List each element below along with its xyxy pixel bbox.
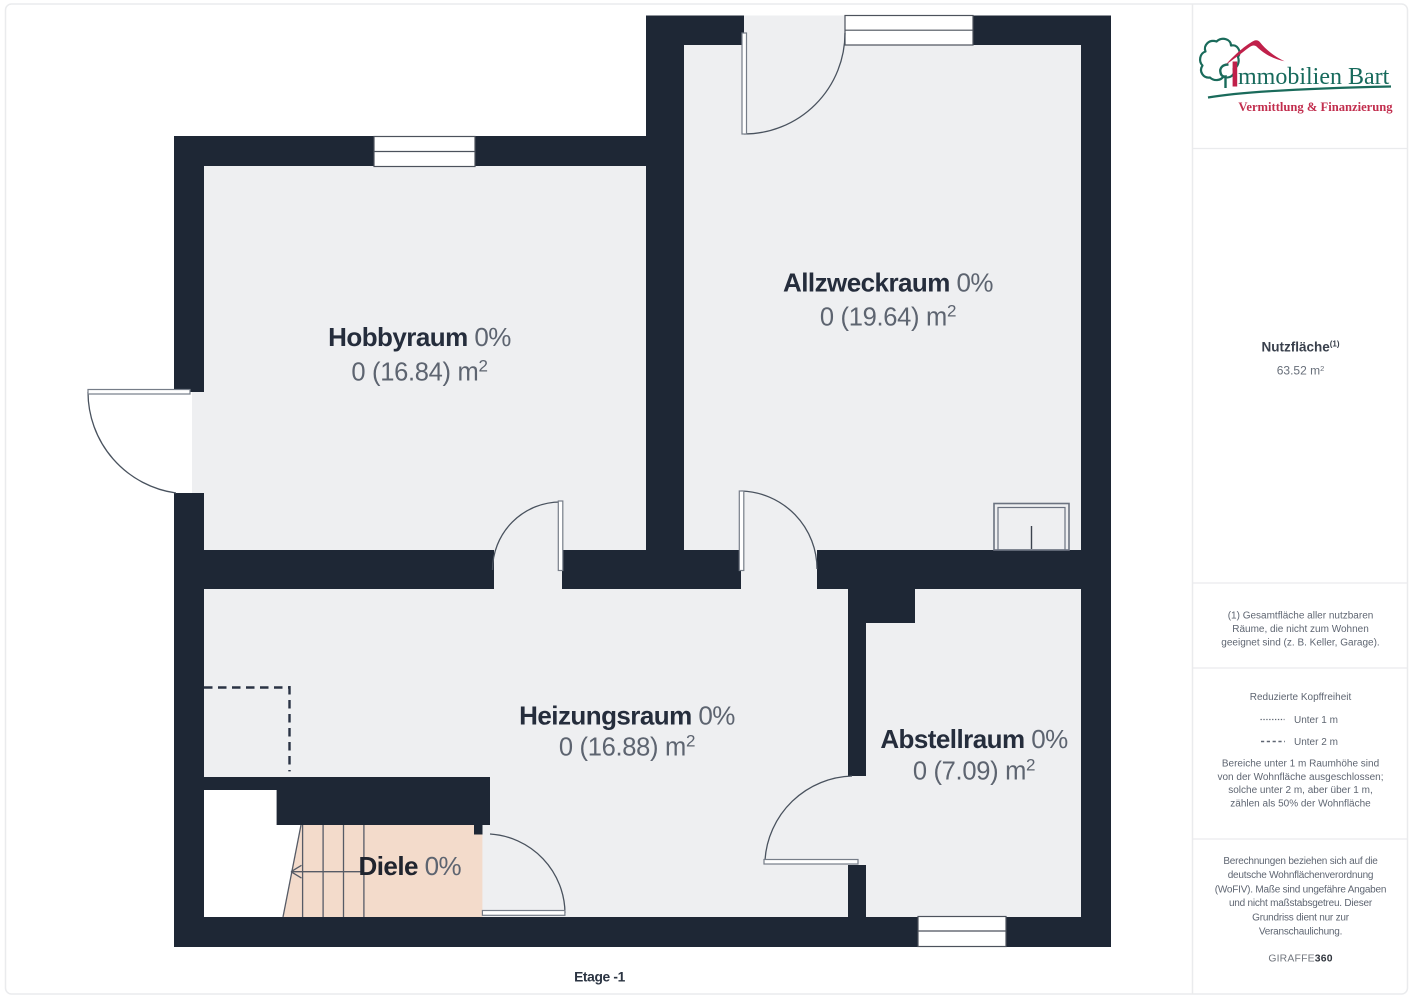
svg-text:Allzweckraum 0%: Allzweckraum 0% (783, 268, 993, 298)
svg-text:Vermittlung & Finanzierung: Vermittlung & Finanzierung (1238, 100, 1393, 114)
svg-text:deutsche Wohnflächenverordnung: deutsche Wohnflächenverordnung (1228, 870, 1374, 881)
svg-text:zählen als 50% der Wohnfläche: zählen als 50% der Wohnfläche (1230, 798, 1371, 809)
svg-text:(WoFIV). Maße sind ungefähre A: (WoFIV). Maße sind ungefähre Angaben (1215, 884, 1386, 895)
svg-text:Etage -1: Etage -1 (574, 970, 626, 985)
svg-text:Heizungsraum 0%: Heizungsraum 0% (519, 701, 735, 731)
svg-text:Nutzfläche(1): Nutzfläche(1) (1261, 340, 1339, 355)
svg-text:Hobbyraum 0%: Hobbyraum 0% (328, 322, 511, 352)
svg-text:(1) Gesamtfläche aller nutzbar: (1) Gesamtfläche aller nutzbaren (1228, 611, 1374, 622)
svg-text:geeignet sind (z. B. Keller, G: geeignet sind (z. B. Keller, Garage). (1221, 638, 1379, 649)
svg-text:Veranschaulichung.: Veranschaulichung. (1259, 926, 1342, 937)
svg-text:und nicht maßstabsgetreu. Dies: und nicht maßstabsgetreu. Dieser (1229, 898, 1373, 909)
svg-text:Abstellraum 0%: Abstellraum 0% (880, 724, 1068, 754)
svg-text:solche unter 2 m, aber über 1: solche unter 2 m, aber über 1 m, (1228, 785, 1373, 796)
svg-text:0 (7.09) m2: 0 (7.09) m2 (913, 756, 1035, 786)
svg-text:0 (16.88) m2: 0 (16.88) m2 (559, 732, 695, 762)
svg-text:Unter 2 m: Unter 2 m (1294, 737, 1338, 748)
svg-text:GIRAFFE360: GIRAFFE360 (1268, 954, 1332, 965)
svg-text:63.52 m2: 63.52 m2 (1277, 364, 1325, 378)
svg-text:Grundriss dient nur zur: Grundriss dient nur zur (1252, 912, 1350, 923)
svg-text:Reduzierte Kopffreiheit: Reduzierte Kopffreiheit (1250, 692, 1352, 703)
svg-text:0 (16.84) m2: 0 (16.84) m2 (351, 357, 487, 387)
svg-text:Bereiche unter 1 m Raumhöhe si: Bereiche unter 1 m Raumhöhe sind (1222, 759, 1379, 770)
svg-text:Berechnungen beziehen sich auf: Berechnungen beziehen sich auf die (1223, 856, 1378, 867)
svg-text:0 (19.64) m2: 0 (19.64) m2 (820, 302, 956, 332)
svg-text:von der Wohnfläche ausgeschlos: von der Wohnfläche ausgeschlossen; (1217, 772, 1383, 783)
svg-text:Diele 0%: Diele 0% (359, 851, 462, 881)
svg-text:Unter 1 m: Unter 1 m (1294, 715, 1338, 726)
svg-text:Räume, die nicht zum Wohnen: Räume, die nicht zum Wohnen (1232, 624, 1369, 635)
